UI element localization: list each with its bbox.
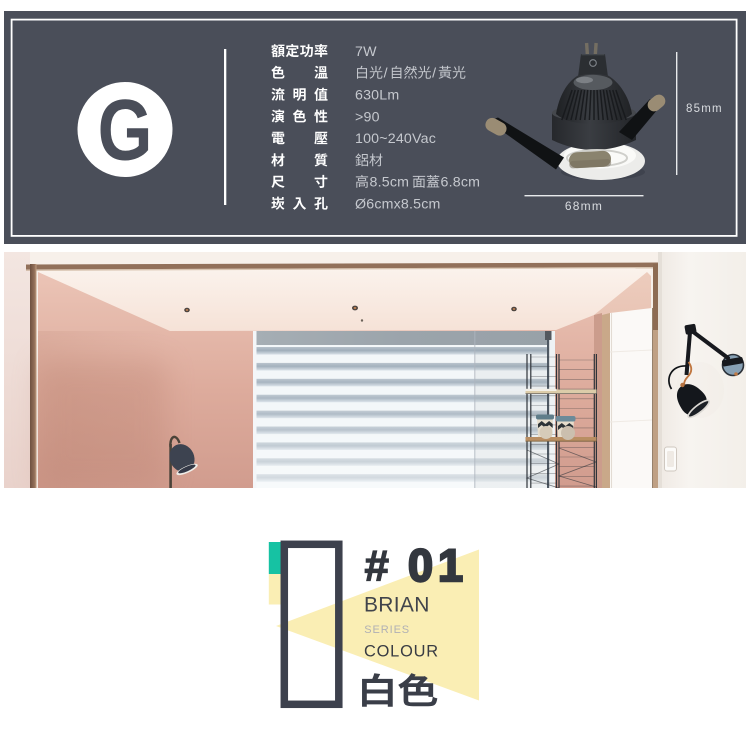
svg-text:BRIAN: BRIAN [364,594,430,617]
svg-text:6.8cm: 6.8cm [441,175,481,191]
svg-text:SERIES: SERIES [364,624,410,636]
svg-text:/: / [432,66,436,82]
svg-text:01: 01 [408,540,468,591]
svg-text:85mm: 85mm [686,103,723,115]
svg-text:#: # [365,542,389,591]
svg-text:100~240Vac: 100~240Vac [355,131,436,147]
svg-text:COLOUR: COLOUR [364,642,439,660]
svg-text:>90: >90 [355,109,380,125]
svg-text:68mm: 68mm [565,199,603,213]
svg-text:Ø6cmx8.5cm: Ø6cmx8.5cm [355,197,441,213]
svg-text:/: / [384,66,388,82]
svg-text:630Lm: 630Lm [355,88,399,104]
svg-text:8.5cm: 8.5cm [370,175,410,191]
svg-text:7W: 7W [355,44,377,60]
svg-text:G: G [98,82,153,178]
